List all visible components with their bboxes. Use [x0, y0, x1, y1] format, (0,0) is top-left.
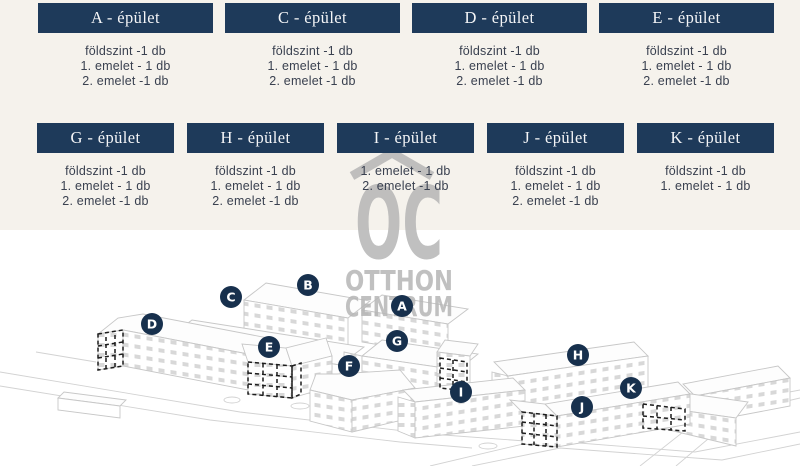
cards-row-2: G - épületföldszint -1 db1. emelet - 1 d…: [37, 123, 774, 209]
floor-availability-line: földszint -1 db: [210, 164, 300, 179]
floor-availability-list: földszint -1 db1. emelet - 1 db2. emelet…: [80, 44, 170, 89]
svg-text:F: F: [345, 359, 354, 374]
floor-availability-line: 2. emelet -1 db: [267, 74, 357, 89]
building-marker-c[interactable]: C: [220, 286, 242, 308]
building-card-i: I - épület1. emelet - 1 db2. emelet -1 d…: [337, 123, 474, 209]
floor-availability-line: 2. emelet -1 db: [60, 194, 150, 209]
floor-availability-line: 2. emelet -1 db: [360, 179, 450, 194]
building-button-a[interactable]: A - épület: [38, 3, 213, 33]
floor-availability-line: 1. emelet - 1 db: [267, 59, 357, 74]
floor-availability-line: 1. emelet - 1 db: [210, 179, 300, 194]
building-card-h: H - épületföldszint -1 db1. emelet - 1 d…: [187, 123, 324, 209]
floor-availability-line: földszint -1 db: [510, 164, 600, 179]
floor-availability-line: 1. emelet - 1 db: [510, 179, 600, 194]
floor-availability-line: földszint -1 db: [80, 44, 170, 59]
building-marker-i[interactable]: I: [450, 381, 472, 403]
availability-page: OC OTTHON CENTRUM ABCDEFGHIJK A - épület…: [0, 0, 800, 466]
floor-availability-line: 2. emelet -1 db: [210, 194, 300, 209]
cards-row-1: A - épületföldszint -1 db1. emelet - 1 d…: [38, 3, 774, 89]
building-card-k: K - épületföldszint -1 db1. emelet - 1 d…: [637, 123, 774, 209]
svg-text:A: A: [397, 299, 407, 314]
floor-availability-line: 2. emelet -1 db: [510, 194, 600, 209]
floor-availability-list: földszint -1 db1. emelet - 1 db2. emelet…: [267, 44, 357, 89]
floor-availability-line: földszint -1 db: [60, 164, 150, 179]
floor-availability-line: földszint -1 db: [660, 164, 750, 179]
building-button-g[interactable]: G - épület: [37, 123, 174, 153]
building-marker-e[interactable]: E: [258, 336, 280, 358]
floor-availability-line: 2. emelet -1 db: [641, 74, 731, 89]
svg-text:J: J: [579, 400, 585, 415]
building-card-j: J - épületföldszint -1 db1. emelet - 1 d…: [487, 123, 624, 209]
building-marker-j[interactable]: J: [571, 396, 593, 418]
floor-availability-list: földszint -1 db1. emelet - 1 db2. emelet…: [641, 44, 731, 89]
building-marker-h[interactable]: H: [567, 344, 589, 366]
building-button-d[interactable]: D - épület: [412, 3, 587, 33]
floor-availability-line: 1. emelet - 1 db: [60, 179, 150, 194]
building-marker-k[interactable]: K: [620, 377, 642, 399]
floor-availability-list: 1. emelet - 1 db2. emelet -1 db: [360, 164, 450, 194]
svg-text:I: I: [459, 385, 464, 400]
building-button-c[interactable]: C - épület: [225, 3, 400, 33]
svg-text:K: K: [626, 381, 637, 396]
svg-text:B: B: [303, 278, 313, 293]
svg-text:C: C: [226, 290, 235, 305]
building-marker-b[interactable]: B: [297, 274, 319, 296]
svg-text:G: G: [392, 334, 402, 349]
svg-text:H: H: [573, 348, 583, 363]
floor-availability-list: földszint -1 db1. emelet - 1 db2. emelet…: [210, 164, 300, 209]
building-button-i[interactable]: I - épület: [337, 123, 474, 153]
building-button-h[interactable]: H - épület: [187, 123, 324, 153]
floor-availability-list: földszint -1 db1. emelet - 1 db2. emelet…: [60, 164, 150, 209]
building-button-j[interactable]: J - épület: [487, 123, 624, 153]
building-card-e: E - épületföldszint -1 db1. emelet - 1 d…: [599, 3, 774, 89]
floor-availability-line: 1. emelet - 1 db: [660, 179, 750, 194]
floor-availability-line: földszint -1 db: [454, 44, 544, 59]
floor-availability-list: földszint -1 db1. emelet - 1 db2. emelet…: [454, 44, 544, 89]
building-button-e[interactable]: E - épület: [599, 3, 774, 33]
building-marker-f[interactable]: F: [338, 355, 360, 377]
floor-availability-line: 1. emelet - 1 db: [454, 59, 544, 74]
svg-text:E: E: [265, 340, 274, 355]
floor-availability-line: 1. emelet - 1 db: [80, 59, 170, 74]
floor-availability-line: földszint -1 db: [267, 44, 357, 59]
floor-availability-list: földszint -1 db1. emelet - 1 db: [660, 164, 750, 194]
building-marker-g[interactable]: G: [386, 330, 408, 352]
building-card-c: C - épületföldszint -1 db1. emelet - 1 d…: [225, 3, 400, 89]
floor-availability-line: földszint -1 db: [641, 44, 731, 59]
building-button-k[interactable]: K - épület: [637, 123, 774, 153]
svg-text:D: D: [147, 317, 157, 332]
building-card-d: D - épületföldszint -1 db1. emelet - 1 d…: [412, 3, 587, 89]
building-card-a: A - épületföldszint -1 db1. emelet - 1 d…: [38, 3, 213, 89]
floor-availability-line: 2. emelet -1 db: [80, 74, 170, 89]
floor-availability-list: földszint -1 db1. emelet - 1 db2. emelet…: [510, 164, 600, 209]
building-card-g: G - épületföldszint -1 db1. emelet - 1 d…: [37, 123, 174, 209]
building-marker-d[interactable]: D: [141, 313, 163, 335]
building-marker-a[interactable]: A: [391, 295, 413, 317]
floor-availability-line: 1. emelet - 1 db: [360, 164, 450, 179]
floor-availability-line: 1. emelet - 1 db: [641, 59, 731, 74]
floor-availability-line: 2. emelet -1 db: [454, 74, 544, 89]
